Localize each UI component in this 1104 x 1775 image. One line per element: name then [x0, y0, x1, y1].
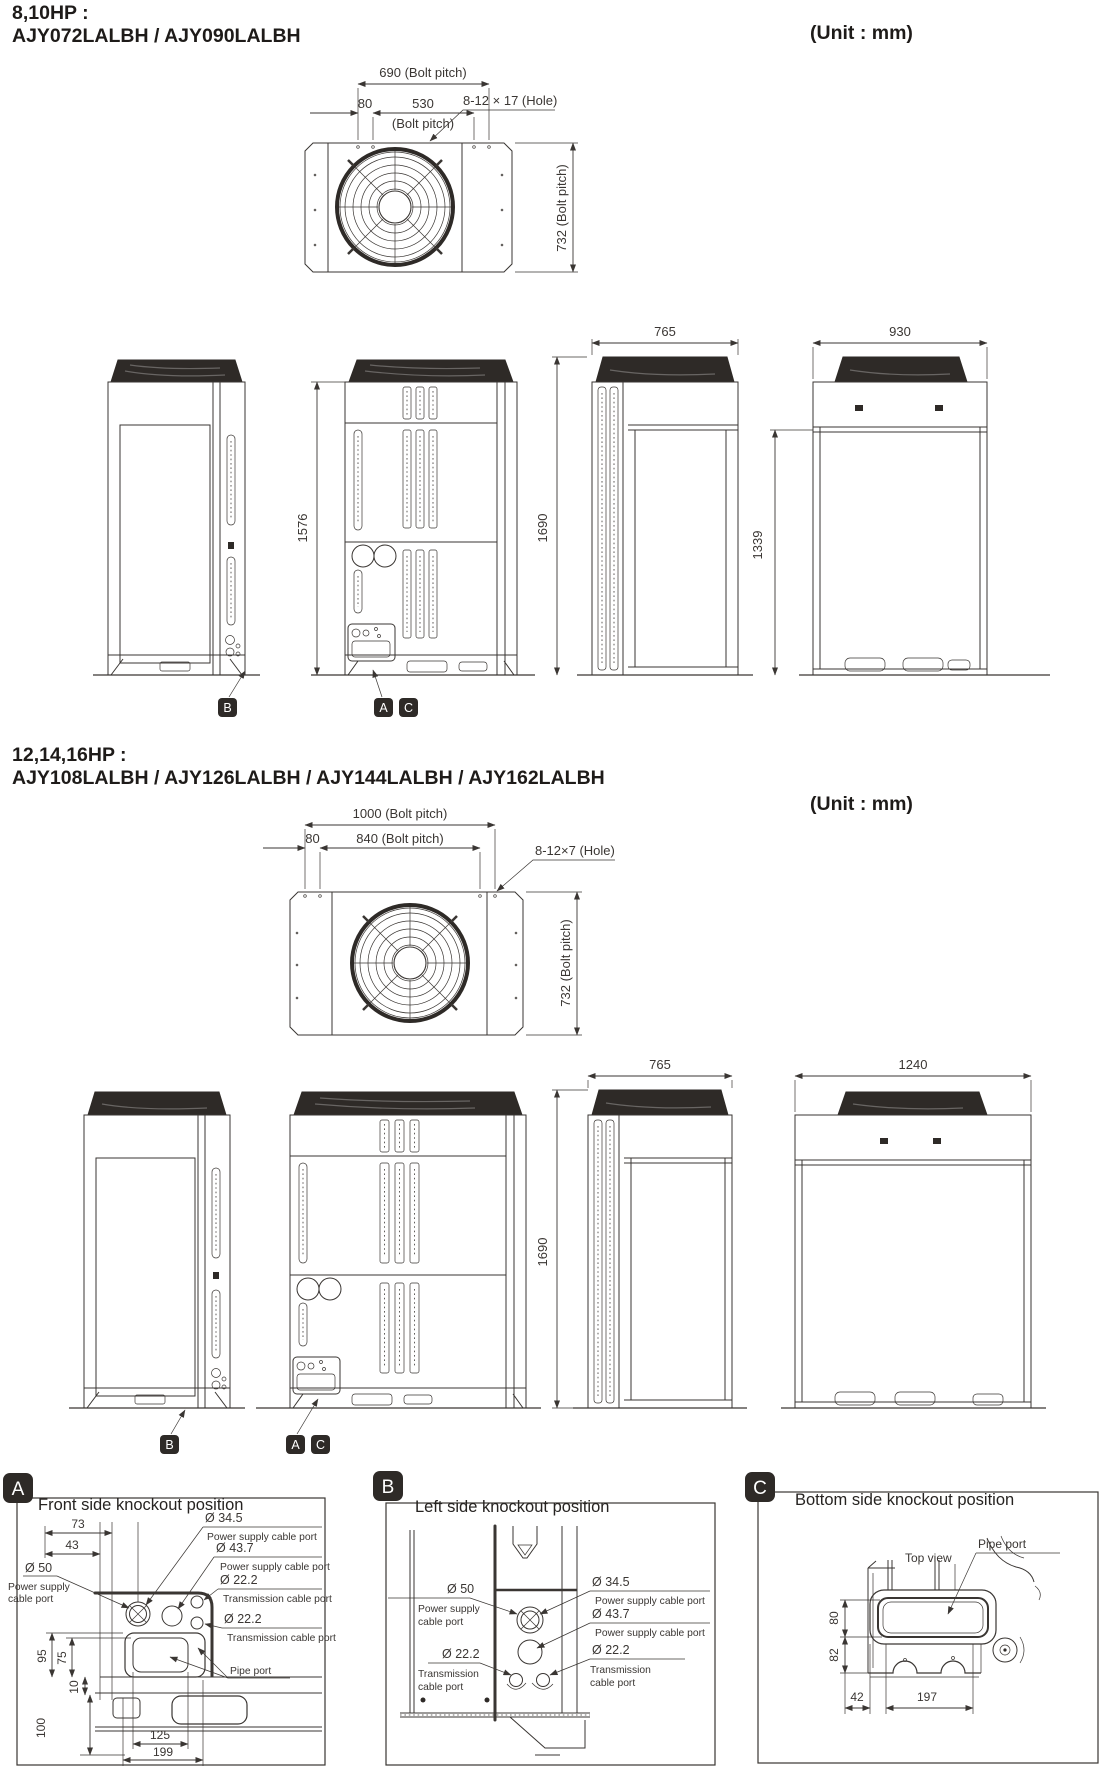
svg-text:B: B: [382, 1477, 395, 1498]
dim-1000-bolt-pitch: 1000 (Bolt pitch): [353, 808, 448, 821]
svg-text:Ø 22.2: Ø 22.2: [224, 1612, 262, 1626]
svg-text:B: B: [223, 701, 231, 715]
svg-text:Ø 50: Ø 50: [447, 1582, 474, 1596]
svg-text:42: 42: [850, 1690, 864, 1704]
section1-badges: B A C: [218, 670, 418, 717]
section1-unit-label: (Unit : mm): [810, 22, 913, 45]
dim-80-offset: 80: [358, 96, 372, 111]
svg-text:C: C: [404, 701, 413, 715]
dim-690-bolt-pitch: 690 (Bolt pitch): [379, 65, 466, 80]
svg-text:10: 10: [67, 1680, 81, 1694]
section1-top-view-drawing: 690 (Bolt pitch) 80 530 (Bolt pitch) 8-1…: [225, 50, 617, 302]
svg-text:82: 82: [827, 1648, 841, 1662]
svg-text:Power supply: Power supply: [418, 1604, 481, 1615]
front-view: [256, 1092, 541, 1408]
top-view-label: Top view: [905, 1551, 952, 1565]
rear-view-1240: 1240: [781, 1057, 1046, 1408]
svg-text:Ø 22.2: Ø 22.2: [220, 1573, 258, 1587]
panel-c-title: Bottom side knockout position: [795, 1491, 1014, 1509]
svg-text:Ø 34.5: Ø 34.5: [592, 1575, 630, 1589]
svg-text:A: A: [12, 1479, 25, 1500]
section2-badges: B A C: [160, 1399, 330, 1454]
side-view-left: [93, 360, 260, 675]
svg-text:1690: 1690: [535, 514, 550, 543]
rear-view-930: 930: [799, 324, 1050, 675]
front-view: [311, 360, 535, 675]
fan-grille: [337, 149, 453, 265]
svg-text:Ø 50: Ø 50: [25, 1561, 52, 1575]
svg-text:Ø 22.2: Ø 22.2: [592, 1643, 630, 1657]
svg-text:cable port: cable port: [418, 1682, 463, 1693]
svg-text:765: 765: [654, 324, 676, 339]
svg-text:75: 75: [55, 1651, 69, 1665]
section2-hp-title: 12,14,16HP :: [12, 744, 127, 767]
svg-text:199: 199: [153, 1745, 173, 1759]
svg-text:930: 930: [889, 324, 911, 339]
section2-top-view-drawing: 1000 (Bolt pitch) 80 840 (Bolt pitch) 8-…: [225, 808, 625, 1066]
svg-text:197: 197: [917, 1690, 937, 1704]
hole-callout: 8-12 × 17 (Hole): [463, 93, 557, 108]
side-view-765: 765: [573, 1057, 747, 1408]
section1-hp-title: 8,10HP :: [12, 2, 89, 25]
svg-text:1576: 1576: [295, 514, 310, 543]
dim-840-bolt-pitch: 840 (Bolt pitch): [356, 831, 443, 846]
svg-text:Ø 34.5: Ø 34.5: [205, 1511, 243, 1525]
section1-elevation-views: 1576: [55, 295, 1050, 743]
svg-text:C: C: [316, 1438, 325, 1452]
svg-text:Ø 22.2: Ø 22.2: [442, 1647, 480, 1661]
dim-1576: 1576: [295, 382, 345, 675]
svg-text:43: 43: [65, 1538, 79, 1552]
svg-text:95: 95: [35, 1649, 49, 1663]
svg-text:B: B: [165, 1438, 173, 1452]
svg-text:cable port: cable port: [590, 1678, 635, 1689]
svg-text:Ø 43.7: Ø 43.7: [592, 1607, 630, 1621]
section2-elevation-views: 1690: [35, 1040, 1065, 1495]
svg-text:A: A: [379, 701, 388, 715]
dim-80-offset: 80: [305, 831, 319, 846]
top-view-dimensions: 1000 (Bolt pitch) 80 840 (Bolt pitch) 8-…: [263, 808, 615, 1035]
svg-text:1339: 1339: [750, 531, 765, 560]
dim-1690: 1690: [535, 1090, 588, 1408]
section2-models: AJY108LALBH / AJY126LALBH / AJY144LALBH …: [12, 767, 605, 790]
panel-b-title: Left side knockout position: [415, 1498, 609, 1516]
dim-732-bolt-pitch: 732 (Bolt pitch): [558, 919, 573, 1006]
dim-530: 530: [412, 96, 434, 111]
panel-a-drawing: 73 43 Ø 34.5 Power supply cable port Ø 4…: [8, 1511, 336, 1766]
dim-530-sub: (Bolt pitch): [392, 116, 454, 131]
drawing-page: 8,10HP : AJY072LALBH / AJY090LALBH (Unit…: [0, 0, 1104, 1775]
panel-a-front-knockout: A Front side knockout position 73 43 Ø 3…: [0, 1468, 340, 1775]
svg-text:80: 80: [827, 1611, 841, 1625]
side-view-765: 765 1690: [535, 324, 753, 675]
panel-c-bottom-knockout: C Bottom side knockout position Top view…: [655, 1468, 1104, 1775]
svg-text:cable port: cable port: [418, 1617, 463, 1628]
svg-text:73: 73: [71, 1517, 85, 1531]
dim-732-bolt-pitch: 732 (Bolt pitch): [554, 164, 569, 251]
dim-1339: 1339: [750, 430, 813, 675]
fan-grille: [352, 905, 468, 1021]
svg-text:Pipe port: Pipe port: [230, 1666, 271, 1677]
svg-text:Power supply cable port: Power supply cable port: [220, 1562, 330, 1573]
svg-text:1690: 1690: [535, 1238, 550, 1267]
svg-text:125: 125: [150, 1728, 170, 1742]
svg-text:A: A: [291, 1438, 300, 1452]
svg-text:Transmission: Transmission: [590, 1665, 651, 1676]
section2-unit-label: (Unit : mm): [810, 793, 913, 816]
svg-text:1240: 1240: [899, 1057, 928, 1072]
svg-text:765: 765: [649, 1057, 671, 1072]
hole-callout: 8-12×7 (Hole): [535, 843, 615, 858]
svg-text:100: 100: [34, 1718, 48, 1738]
section1-models: AJY072LALBH / AJY090LALBH: [12, 25, 301, 48]
panel-c-drawing: Top view Pipe port 80 82 4: [827, 1536, 1060, 1714]
svg-text:cable port: cable port: [8, 1594, 53, 1605]
svg-text:Power supply: Power supply: [8, 1582, 71, 1593]
svg-text:Transmission cable port: Transmission cable port: [227, 1633, 336, 1644]
svg-text:Transmission: Transmission: [418, 1669, 479, 1680]
svg-text:C: C: [753, 1478, 767, 1499]
svg-text:Transmission cable port: Transmission cable port: [223, 1594, 332, 1605]
side-view-left: [69, 1092, 245, 1408]
svg-text:Ø 43.7: Ø 43.7: [216, 1541, 254, 1555]
